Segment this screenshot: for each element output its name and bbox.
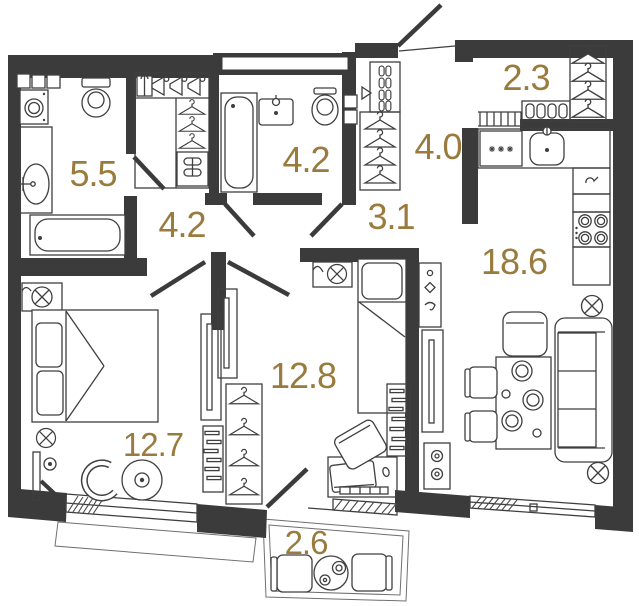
door-swing-bathroom-small [134, 157, 164, 189]
sink-icon [20, 127, 52, 213]
room-label-bedroom-master: 12.7 [123, 426, 183, 463]
room-hallway: 4.2 [135, 73, 209, 245]
window-bedroom-master [66, 494, 197, 522]
door-swing-balcony [267, 469, 307, 507]
door-swing-hall [311, 204, 342, 236]
room-label-pantry: 2.3 [502, 57, 549, 98]
bookshelf-icon-2 [203, 426, 223, 492]
floor-plan-canvas: 5.5 4.2 4.2 [0, 0, 639, 606]
shoe-shelf-icon [177, 152, 208, 186]
door-swing-bathroom-large [225, 204, 254, 236]
nightstand-light [313, 262, 352, 287]
room-bedroom-master: 12.7 [22, 283, 223, 500]
round-table-icon [122, 460, 162, 500]
bathtub-icon-2 [221, 93, 257, 192]
toilet-icon-2 [312, 88, 338, 125]
toilet-icon [82, 78, 110, 117]
shoe-shelf-icon-2 [370, 62, 400, 112]
media-cabinet [424, 443, 450, 489]
desk-chair [332, 418, 388, 471]
room-label-bedroom: 12.8 [270, 355, 336, 396]
stove-icon [573, 212, 610, 247]
coat-rack-icon [137, 76, 205, 96]
room-bedroom: 12.8 [218, 259, 410, 504]
kitchen-column [573, 168, 610, 285]
nightstand-light-2 [22, 283, 62, 311]
room-bathroom-large: 4.2 [221, 88, 357, 192]
washing-machine-icon [20, 90, 48, 124]
wardrobe-hanger-icon [179, 100, 205, 149]
room-label-bathroom-large: 4.2 [282, 139, 329, 180]
entrance-door-swing [398, 5, 441, 46]
ceiling-light-icon [588, 463, 609, 484]
double-bed-icon [32, 310, 158, 422]
window-living [470, 496, 595, 517]
dishwasher-icon [480, 131, 522, 166]
sink-icon-2 [259, 95, 293, 125]
floor-plan: 5.5 4.2 4.2 [0, 0, 639, 606]
bathtub-icon [30, 215, 125, 255]
door-swing-bedroom-master [151, 262, 205, 296]
dining-table-icon [496, 357, 551, 449]
ceiling-light-icon [37, 429, 56, 448]
lounge-chair-icon [84, 463, 115, 498]
keyboard-icon [340, 487, 388, 494]
chair-icon [465, 367, 497, 442]
room-kitchen-living: 18.6 [419, 127, 612, 489]
room-label-hallway: 4.2 [158, 204, 205, 245]
sofa-icon [555, 318, 612, 462]
room-hall: 3.1 [360, 62, 415, 237]
wardrobe-hanger-icon-4 [226, 384, 262, 504]
bottle-shelf-icon [522, 101, 570, 121]
radiator-icon [478, 112, 522, 126]
wardrobe-hanger-icon-2 [360, 112, 400, 190]
room-label-corridor: 4.0 [414, 126, 461, 167]
kitchen-counter [478, 127, 610, 168]
coffee-table-icon [314, 556, 348, 590]
tv-panel-icon [422, 330, 443, 432]
ceiling-light-icon [582, 296, 603, 317]
room-label-hall: 3.1 [367, 196, 414, 237]
kitchen-sink-icon [530, 127, 564, 165]
window-balcony-door [308, 499, 397, 515]
room-bathroom-small: 5.5 [17, 74, 125, 255]
wall-hooks-icon [419, 263, 441, 327]
kettle-icon [586, 177, 598, 183]
room-label-balcony: 2.6 [285, 524, 328, 561]
room-label-bathroom-small: 5.5 [69, 153, 116, 194]
room-label-kitchen-living: 18.6 [481, 241, 547, 282]
armchair-icon [503, 312, 547, 356]
